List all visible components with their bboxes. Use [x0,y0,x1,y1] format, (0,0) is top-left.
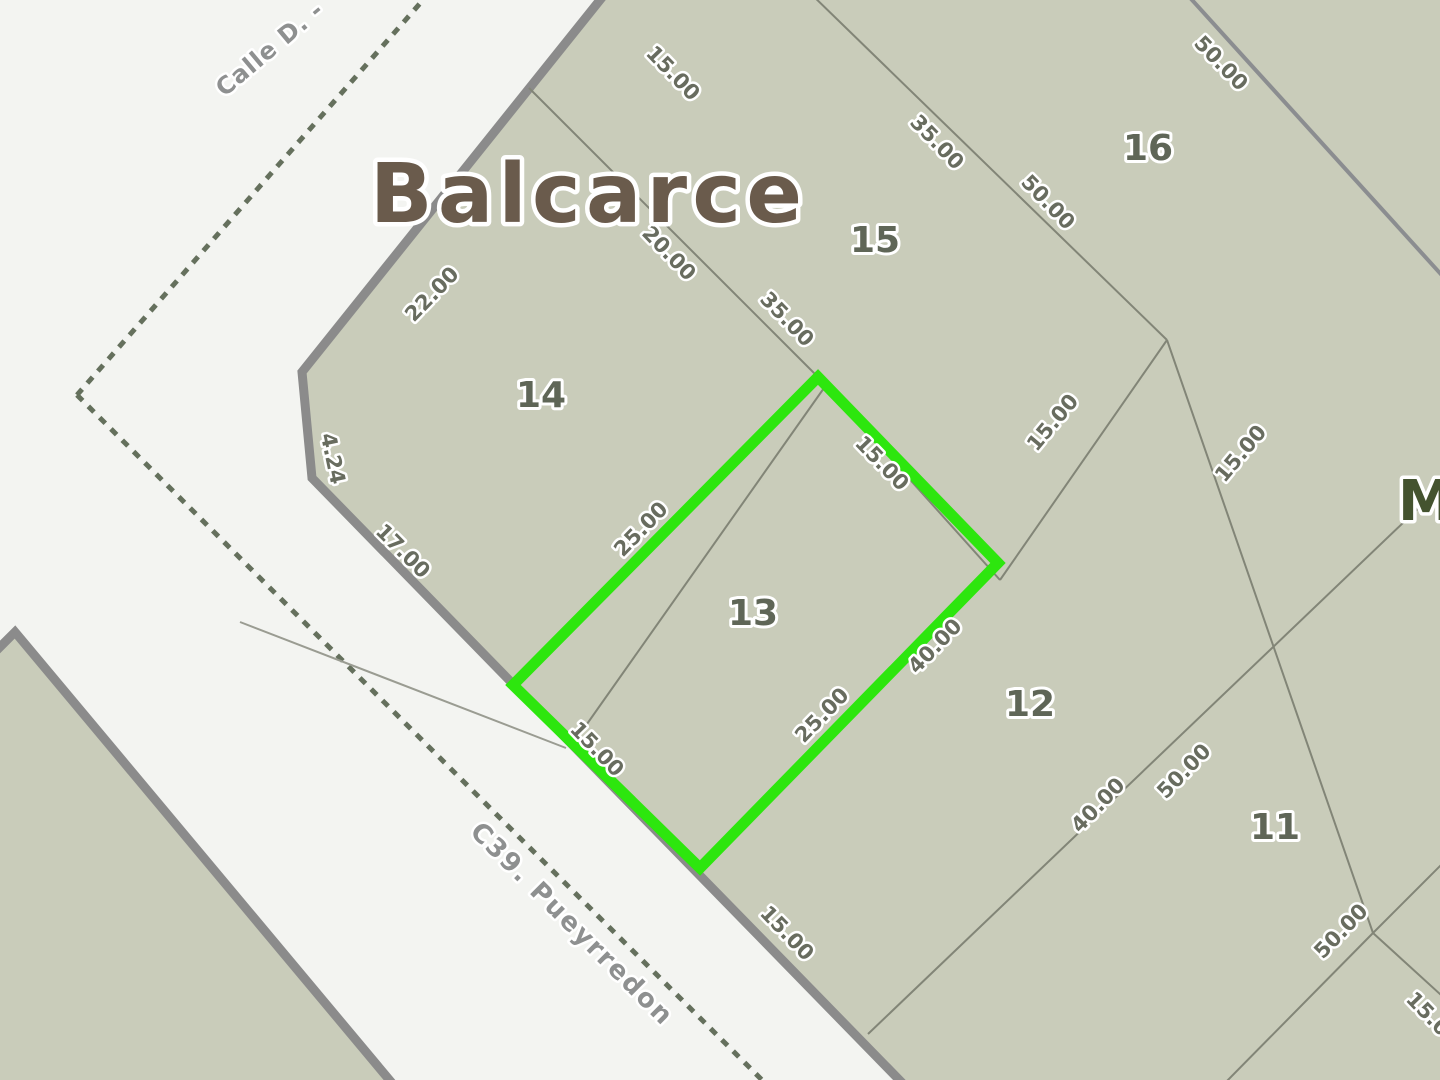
parcel-number-13: 13 [728,593,778,634]
parcel-number-12: 12 [1005,684,1055,725]
parcel-number-14: 14 [516,375,566,416]
parcel-number-16: 16 [1123,128,1173,169]
parcel-number-15: 15 [850,220,900,261]
adjacent-block-label: M [1398,469,1440,534]
cadastral-map-viewer[interactable]: 15.0035.0050.0050.0020.0035.0022.004.241… [0,0,1440,1080]
parcel-number-11: 11 [1250,807,1300,848]
map-canvas[interactable]: 15.0035.0050.0050.0020.0035.0022.004.241… [0,0,1440,1080]
